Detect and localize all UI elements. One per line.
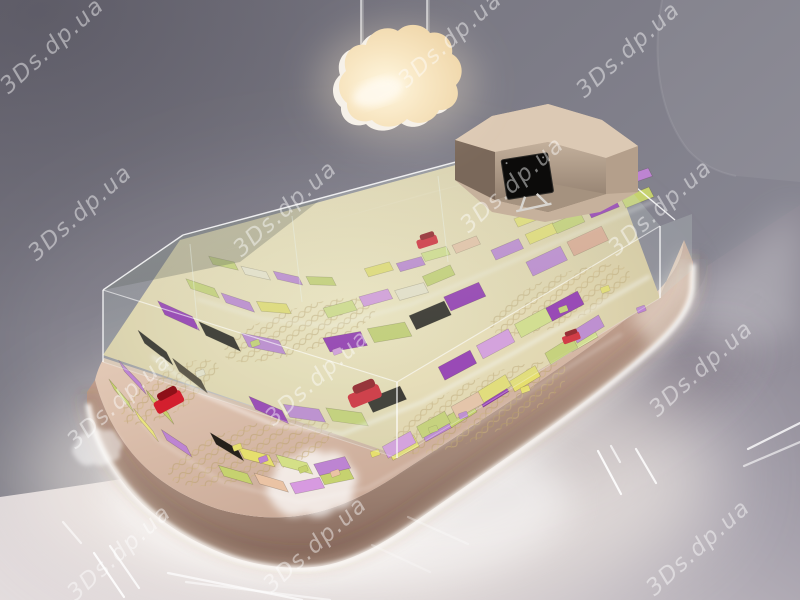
render-canvas: 3Ds.dp.ua3Ds.dp.ua3Ds.dp.ua3Ds.dp.ua3Ds.…	[0, 0, 800, 600]
scene-3d-render: 3Ds.dp.ua3Ds.dp.ua3Ds.dp.ua3Ds.dp.ua3Ds.…	[0, 0, 800, 600]
